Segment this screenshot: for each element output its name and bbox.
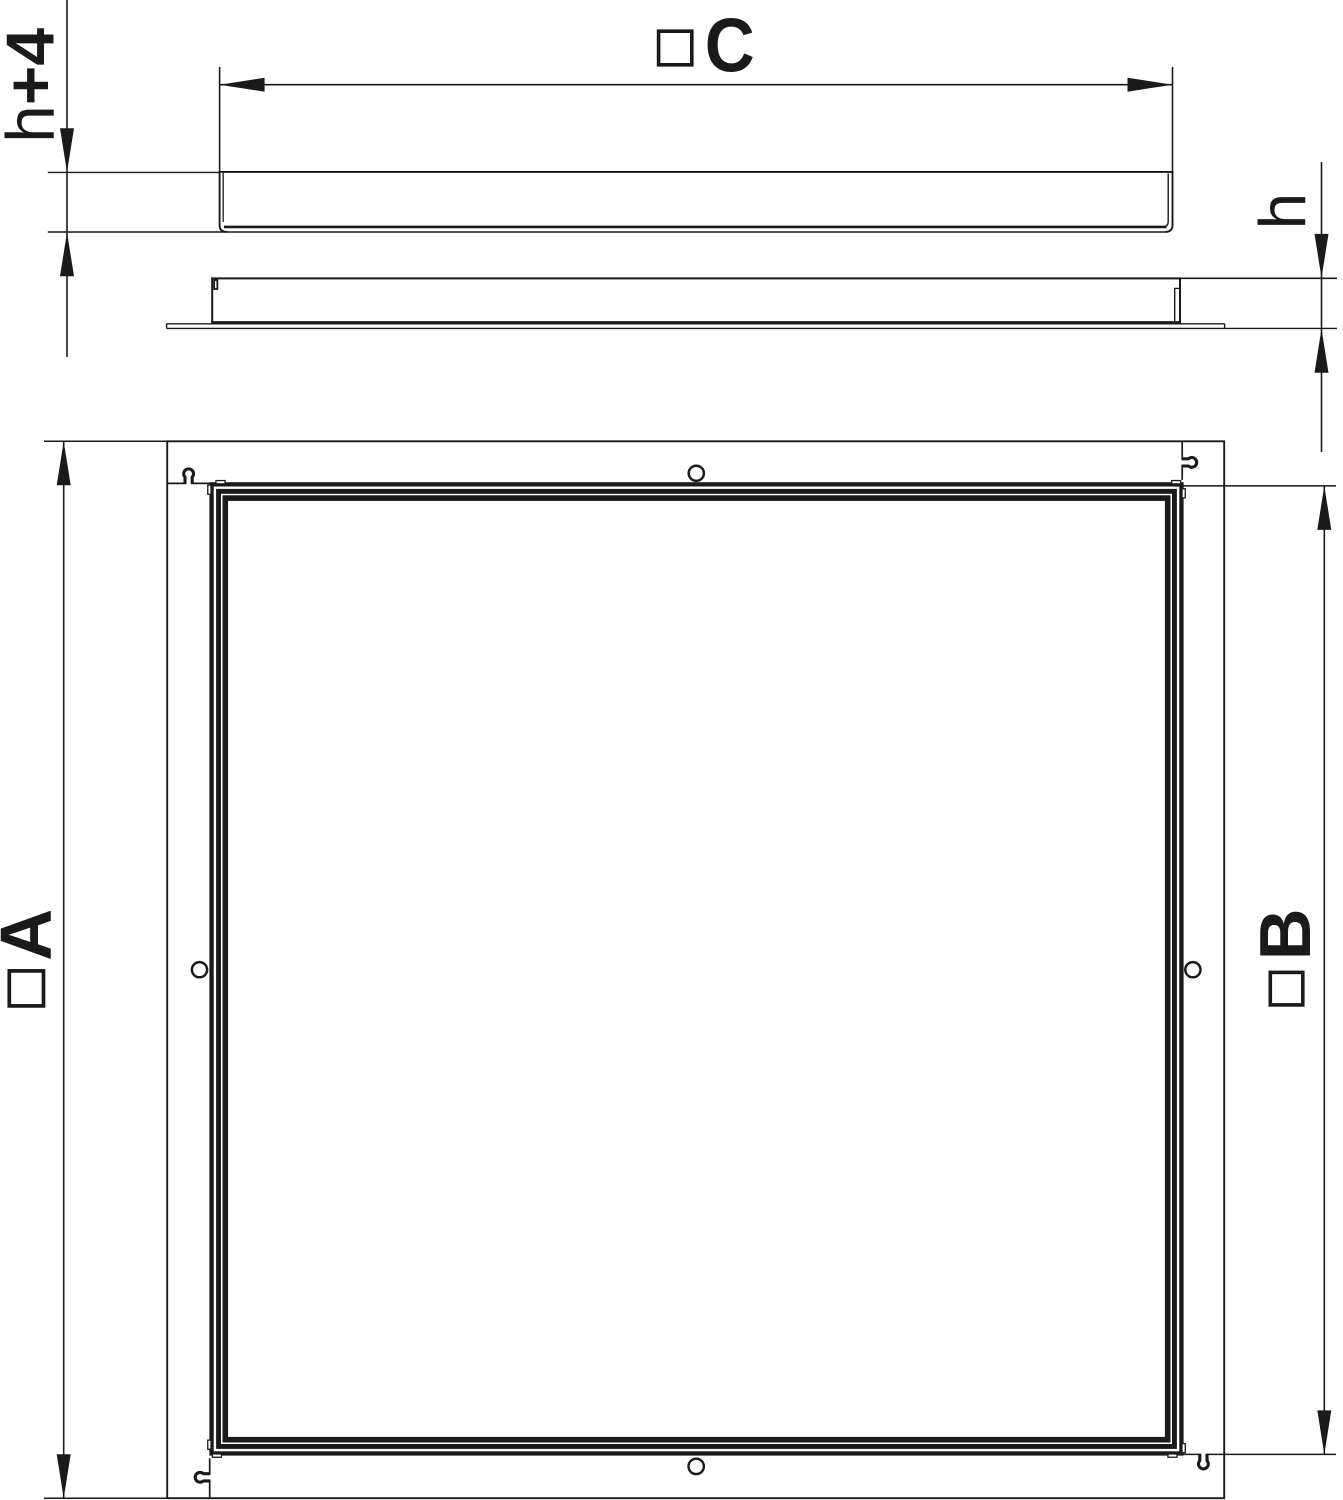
svg-text:h: h — [1246, 193, 1320, 230]
svg-text:C: C — [705, 4, 755, 89]
svg-text:B: B — [1246, 908, 1326, 960]
svg-text:A: A — [0, 909, 66, 961]
svg-text:h+4: h+4 — [0, 28, 68, 143]
